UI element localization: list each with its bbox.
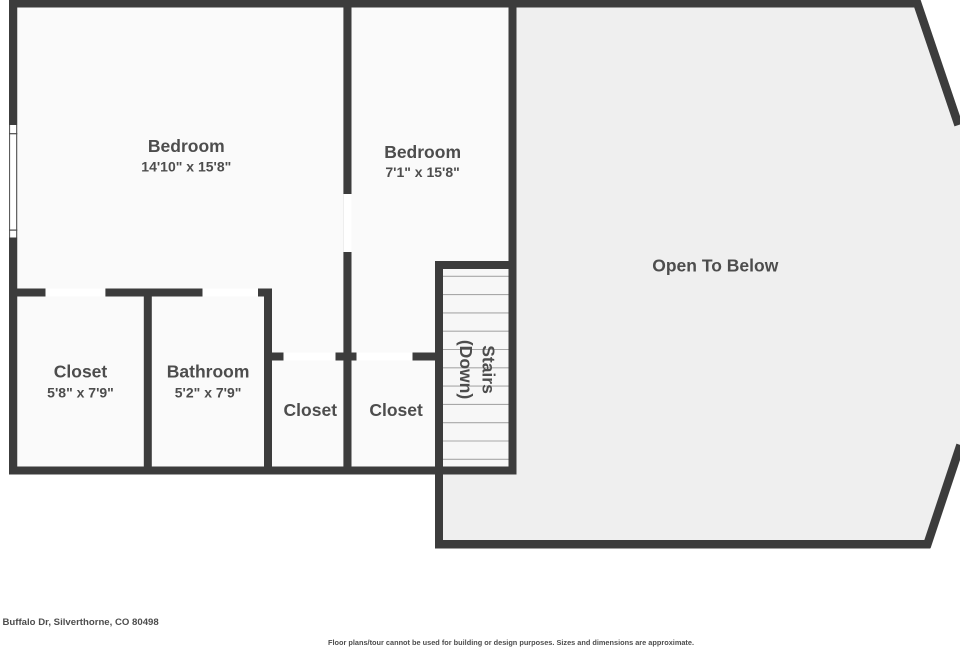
svg-text:Bedroom: Bedroom (384, 142, 461, 162)
svg-text:7'1" x 15'8": 7'1" x 15'8" (385, 164, 459, 180)
svg-text:Closet: Closet (54, 362, 108, 382)
svg-text:Open To Below: Open To Below (652, 256, 778, 276)
svg-text:14'10" x 15'8": 14'10" x 15'8" (141, 159, 231, 175)
svg-text:Bathroom: Bathroom (167, 362, 250, 382)
svg-text:5'2" x 7'9": 5'2" x 7'9" (175, 385, 242, 401)
svg-text:Buffalo Dr, Silverthorne, CO 8: Buffalo Dr, Silverthorne, CO 80498 (3, 617, 160, 628)
svg-text:Closet: Closet (369, 400, 423, 420)
svg-text:Bedroom: Bedroom (148, 136, 225, 156)
svg-text:(Down): (Down) (456, 340, 476, 399)
svg-text:Stairs: Stairs (478, 345, 498, 394)
svg-text:5'8" x 7'9": 5'8" x 7'9" (47, 385, 114, 401)
svg-text:Floor plans/tour cannot be use: Floor plans/tour cannot be used for buil… (328, 638, 694, 647)
svg-text:Closet: Closet (284, 400, 338, 420)
